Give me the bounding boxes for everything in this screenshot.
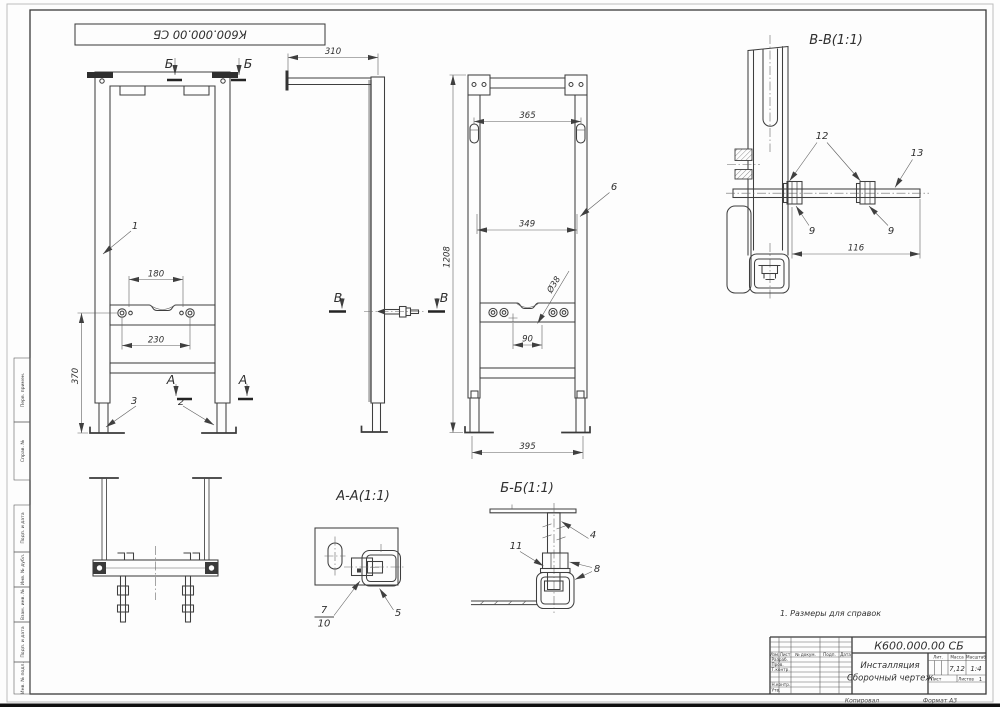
anchor-stud — [186, 576, 191, 622]
margin-field-podp-data-2: Подп. и дата — [20, 626, 26, 657]
nut-facets — [865, 182, 870, 205]
dim-349: 349 — [519, 220, 535, 230]
callout-9: 9 — [888, 226, 894, 237]
front-view: 180 230 370 1 3 2 Б Б А А — [71, 56, 253, 433]
doc-type: Сборочный чертеж — [847, 674, 933, 684]
washer — [549, 308, 557, 316]
margin-field-vzam-inv-no: Взам. инв. № — [20, 589, 26, 620]
leader — [796, 206, 809, 226]
sheet-frame — [0, 4, 1000, 707]
channel-rail — [748, 47, 788, 256]
corner-plate — [565, 75, 587, 95]
sheets-value: 1 — [979, 677, 982, 683]
ext-lines — [129, 276, 183, 307]
lit-label: Лит. — [933, 655, 943, 660]
side-view: В В 310 — [286, 47, 449, 432]
stud-nut — [118, 605, 129, 612]
dim-180: 180 — [148, 270, 164, 280]
callout-3: 3 — [131, 396, 137, 407]
nut — [860, 182, 875, 205]
section-mark-v: В — [440, 290, 449, 305]
leader — [103, 231, 131, 254]
small-hole — [129, 311, 133, 315]
washer-hole — [551, 311, 555, 315]
row-nkontr: Н.контр. — [772, 682, 791, 687]
section-title-aa: А-А(1:1) — [335, 489, 390, 504]
center-cross — [509, 314, 518, 323]
plan-view — [90, 478, 221, 622]
washer-hole — [562, 311, 566, 315]
section-view-vv: В-В(1:1) 12 13 9 9 116 — [726, 33, 929, 299]
margin-field-sprav-no: Справ. № — [20, 440, 26, 463]
footer-format: Формат А3 — [923, 698, 957, 705]
sheet-footer: Копировал Формат А3 — [845, 698, 957, 705]
hanger-tabs — [120, 86, 209, 95]
margin-field-perv-primen: Перв. примен. — [20, 373, 26, 408]
drawing-canvas: К600.000.00 СБ Перв. примен. Справ. № По… — [0, 0, 1000, 707]
section-mark-v: В — [334, 290, 343, 305]
dim-116: 116 — [848, 244, 865, 254]
callout-5: 5 — [395, 608, 401, 619]
section-mark-a: А — [238, 372, 248, 387]
end-block-hole — [97, 565, 102, 570]
callout-9: 9 — [809, 226, 815, 237]
leader — [827, 143, 861, 182]
leg — [371, 403, 385, 432]
dim-370: 370 — [71, 368, 81, 384]
leader — [562, 522, 589, 539]
leader — [580, 193, 610, 217]
washer — [500, 308, 508, 316]
callout-8: 8 — [594, 564, 600, 575]
sheet-label: Лист — [931, 677, 942, 682]
bolt-heads — [118, 553, 200, 560]
stud-nut — [118, 586, 129, 595]
lower-crossbar — [480, 368, 575, 378]
bolt-hole — [472, 83, 476, 87]
leader — [790, 143, 818, 182]
leader — [106, 406, 136, 427]
feet — [90, 428, 236, 434]
crossbar — [480, 303, 575, 322]
section-mark-b: Б — [165, 56, 174, 71]
bracket-profile — [727, 206, 751, 293]
margin-fields: Перв. примен. Справ. № Подп. и дата Инв.… — [14, 358, 30, 694]
leader — [575, 572, 592, 580]
corner-plate — [468, 75, 490, 95]
dim-230: 230 — [148, 336, 164, 346]
col-doc: № докум. — [795, 652, 816, 657]
callout-11: 11 — [510, 541, 523, 552]
stud-nut — [183, 586, 194, 595]
foot-plate — [315, 528, 398, 585]
section-view-aa: А-А(1:1) 7 10 5 — [315, 489, 407, 630]
callout-12: 12 — [816, 131, 829, 142]
top-bar — [490, 78, 565, 88]
leader — [183, 406, 214, 425]
bolt-hole — [221, 79, 225, 83]
bolt-hole — [569, 83, 573, 87]
top-stamp: К600.000.00 СБ — [75, 24, 325, 45]
wall-bracket-section — [735, 170, 752, 180]
stud-arrow — [377, 309, 384, 314]
callout-6: 6 — [611, 182, 617, 193]
drawing-page: К600.000.00 СБ Перв. примен. Справ. № По… — [0, 0, 1000, 707]
callout-4: 4 — [590, 530, 596, 541]
front-view-frame-linework — [95, 72, 230, 433]
page-edge — [7, 4, 993, 702]
end-block-hole — [209, 565, 214, 570]
washer-hole — [120, 311, 124, 315]
col-podp: Подп. — [823, 652, 836, 657]
leader — [570, 562, 593, 568]
product-name: Инсталляция — [860, 661, 919, 671]
stud-nut — [183, 605, 194, 612]
leg-clamp — [577, 391, 584, 398]
bolt-hole — [579, 83, 583, 87]
col-data: Дата — [840, 652, 851, 657]
nut — [543, 553, 569, 569]
feet — [465, 427, 590, 433]
small-hole — [180, 311, 184, 315]
top-right-bracket — [212, 72, 238, 78]
section-title-bb: Б-Б(1:1) — [500, 481, 554, 496]
callout-1: 1 — [132, 221, 138, 232]
wall-plate — [472, 601, 537, 605]
dim-395: 395 — [519, 442, 535, 452]
leader — [895, 160, 913, 188]
leader — [869, 206, 888, 226]
leader — [334, 581, 360, 616]
mass-value: 7,12 — [949, 665, 965, 673]
lower-crossbar — [110, 363, 215, 373]
leg-clamp — [471, 391, 478, 398]
dim-310: 310 — [325, 47, 341, 57]
section-mark-a: А — [166, 372, 176, 387]
wall-bracket-section — [735, 149, 752, 161]
keyhole-slot — [577, 124, 586, 143]
washer — [489, 308, 497, 316]
rails — [468, 95, 587, 398]
top-arm — [288, 78, 371, 85]
margin-field-inv-no-podl: Инв. № подл. — [20, 662, 26, 694]
legs — [470, 398, 585, 432]
drawing-frame — [30, 10, 986, 694]
footer-copied: Копировал — [845, 698, 879, 705]
rear-view: 365 349 6 1208 Ø38 90 395 — [443, 75, 618, 459]
washer-hole — [491, 311, 495, 315]
top-left-bracket — [87, 72, 113, 78]
tab-weld-mark — [357, 569, 361, 573]
arm-end-flange — [286, 71, 289, 91]
top-stamp-text: К600.000.00 СБ — [153, 28, 247, 42]
leader — [520, 552, 544, 567]
margin-field-inv-no-dubl: Инв. № дубл. — [20, 554, 26, 585]
doc-number: К600.000.00 СБ — [874, 640, 964, 653]
keyhole-slot — [470, 124, 479, 143]
washer-hole — [502, 311, 506, 315]
top-plate — [490, 509, 576, 513]
washer — [541, 569, 571, 573]
callout-10: 10 — [318, 619, 331, 630]
section-title-vv: В-В(1:1) — [809, 33, 863, 48]
callout-7: 7 — [321, 605, 328, 616]
margin-field-podp-data-1: Подп. и дата — [20, 512, 26, 543]
dim-365: 365 — [519, 111, 535, 121]
post — [371, 77, 385, 403]
row-tkontr: Т.контр. — [771, 667, 790, 672]
foot — [362, 427, 388, 433]
dim-1208: 1208 — [443, 246, 453, 268]
washer-hole — [188, 311, 192, 315]
washer — [560, 308, 568, 316]
sheets-label: Листов — [958, 677, 974, 682]
reference-note: 1. Размеры для справок — [780, 609, 881, 618]
row-utv: Утв. — [772, 688, 781, 693]
scale-label: Масштаб — [966, 655, 986, 660]
nut-facets — [792, 182, 797, 205]
washer — [186, 309, 194, 317]
nut-facets — [551, 553, 560, 569]
section-mark-b: Б — [244, 56, 253, 71]
washer — [118, 309, 126, 317]
mass-label: Масса — [950, 655, 964, 660]
bolt-hole — [482, 83, 486, 87]
anchor-stud — [121, 576, 126, 622]
callout-13: 13 — [911, 148, 924, 159]
scale-value: 1:4 — [970, 665, 981, 673]
dim-90: 90 — [522, 335, 533, 345]
title-block: К600.000.00 СБ Инсталляция Сборочный чер… — [770, 637, 987, 694]
wall-plate-hatch — [480, 601, 526, 605]
slot-centerlines — [325, 537, 346, 576]
bolt-hole — [100, 79, 104, 83]
leader — [380, 589, 394, 611]
section-view-bb: Б-Б(1:1) 11 4 8 — [472, 481, 601, 613]
nut — [787, 182, 802, 205]
tube-section-inner — [367, 555, 397, 582]
